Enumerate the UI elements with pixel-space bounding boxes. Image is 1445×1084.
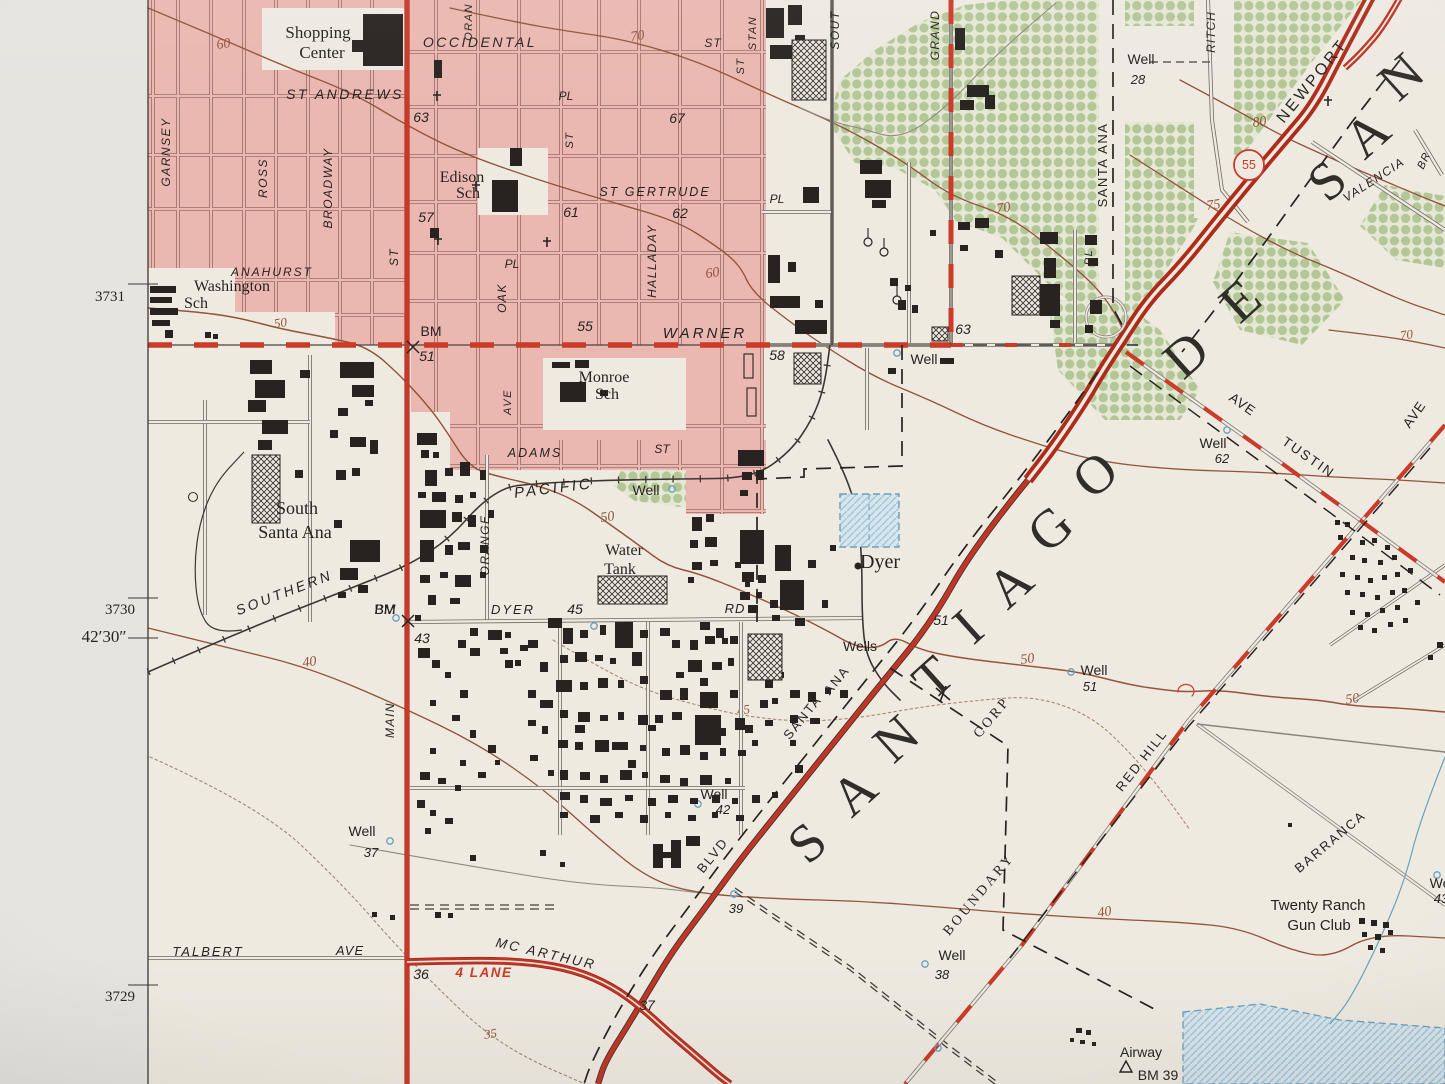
svg-text:OCCIDENTAL: OCCIDENTAL [423,34,537,50]
svg-text:WARNER: WARNER [663,325,747,342]
svg-text:35: 35 [482,1025,498,1042]
svg-text:55: 55 [1242,158,1256,172]
svg-text:South: South [276,498,318,518]
svg-text:STAN: STAN [747,16,759,51]
svg-text:BM: BM [375,601,396,617]
svg-text:Washington: Washington [194,278,270,295]
svg-text:45: 45 [736,701,751,718]
svg-text:45: 45 [567,601,583,617]
svg-text:SOUT: SOUT [828,10,842,50]
svg-text:ADAMS: ADAMS [507,446,562,460]
svg-text:ANAHURST: ANAHURST [230,265,313,279]
svg-text:37: 37 [639,997,656,1013]
svg-text:RD: RD [725,601,746,616]
svg-text:Well: Well [1128,51,1155,67]
svg-text:Santa Ana: Santa Ana [258,522,332,542]
svg-text:63: 63 [955,321,971,337]
svg-text:OAK: OAK [495,283,509,313]
svg-text:BM 39: BM 39 [1138,1067,1179,1083]
svg-text:28: 28 [1130,72,1146,87]
svg-text:42: 42 [716,802,731,817]
svg-text:Sch: Sch [184,295,208,312]
svg-text:60: 60 [705,265,721,282]
svg-text:RITCH: RITCH [1204,11,1218,53]
svg-text:Sch: Sch [456,185,480,202]
svg-text:57: 57 [418,209,435,225]
svg-text:4 LANE: 4 LANE [454,965,512,980]
svg-text:ST: ST [654,442,671,456]
svg-text:39: 39 [729,901,743,916]
svg-text:ST: ST [704,36,722,50]
svg-text:Well: Well [349,823,376,839]
svg-text:Water: Water [605,542,643,559]
svg-text:67: 67 [669,110,686,126]
svg-text:Well: Well [939,947,966,963]
svg-text:TALBERT: TALBERT [172,944,243,959]
svg-text:80: 80 [1252,114,1268,131]
svg-text:Tank: Tank [604,561,636,578]
svg-text:Center: Center [299,43,345,62]
svg-text:58: 58 [769,347,785,363]
svg-text:PL: PL [1083,249,1095,265]
svg-text:Well: Well [1081,662,1108,678]
svg-text:PL: PL [770,192,785,206]
svg-text:Sch: Sch [595,386,619,403]
svg-text:BM: BM [421,323,442,339]
svg-text:Well: Well [701,786,728,802]
svg-text:ROSS: ROSS [256,158,270,198]
svg-text:51: 51 [419,348,435,364]
svg-text:ST ANDREWS: ST ANDREWS [286,86,404,102]
svg-text:Airway: Airway [1120,1044,1162,1060]
svg-text:50: 50 [273,314,288,331]
svg-text:We: We [1430,875,1445,891]
svg-text:Dyer: Dyer [860,551,900,573]
svg-text:62: 62 [672,205,688,221]
svg-text:PL: PL [559,89,574,103]
svg-text:SANTA ANA: SANTA ANA [1095,123,1110,208]
svg-text:62: 62 [1215,451,1230,466]
svg-text:Twenty Ranch: Twenty Ranch [1270,897,1365,914]
svg-text:HALLADAY: HALLADAY [645,224,659,298]
svg-text:BROADWAY: BROADWAY [321,148,335,229]
svg-text:51: 51 [1083,679,1097,694]
svg-text:36: 36 [413,966,429,982]
svg-text:ST: ST [387,248,401,267]
svg-text:Gun Club: Gun Club [1287,917,1350,934]
svg-text:37: 37 [364,845,379,860]
svg-text:70: 70 [996,200,1012,217]
svg-text:Shopping: Shopping [285,23,351,42]
svg-text:ST: ST [564,131,576,148]
svg-text:3731: 3731 [95,289,125,305]
svg-text:GARNSEY: GARNSEY [159,117,173,186]
svg-text:61: 61 [563,204,579,220]
svg-text:AVE: AVE [335,943,364,958]
svg-text:PL: PL [505,257,520,271]
svg-text:43: 43 [414,630,430,646]
svg-text:38: 38 [935,967,950,982]
svg-text:40: 40 [1097,904,1113,921]
svg-text:Wells: Wells [843,638,877,654]
svg-text:MAIN: MAIN [383,702,397,738]
svg-text:DYER: DYER [491,602,535,617]
svg-text:Well: Well [633,482,660,498]
svg-text:ORAN: ORAN [463,3,475,41]
svg-text:50: 50 [1020,651,1036,668]
svg-text:50: 50 [600,509,616,526]
svg-text:55: 55 [577,318,593,334]
svg-text:60: 60 [216,36,232,53]
svg-text:63: 63 [413,109,429,125]
svg-text:GRAND: GRAND [928,10,942,61]
svg-text:Well: Well [1200,435,1227,451]
svg-text:3730: 3730 [105,602,135,618]
svg-text:ST GERTRUDE: ST GERTRUDE [599,185,710,199]
svg-text:Edison: Edison [440,169,484,186]
svg-text:AVE: AVE [502,389,514,416]
svg-text:43: 43 [1434,891,1445,906]
svg-text:3729: 3729 [105,989,135,1005]
svg-text:ST: ST [735,57,747,74]
svg-text:70: 70 [1399,326,1414,343]
svg-text:70: 70 [630,28,646,45]
svg-text:ORANGE: ORANGE [478,514,492,575]
svg-text:Monroe: Monroe [579,369,630,386]
svg-text:42′30″: 42′30″ [82,627,127,646]
svg-text:Well: Well [911,351,938,367]
svg-text:40: 40 [302,654,318,671]
